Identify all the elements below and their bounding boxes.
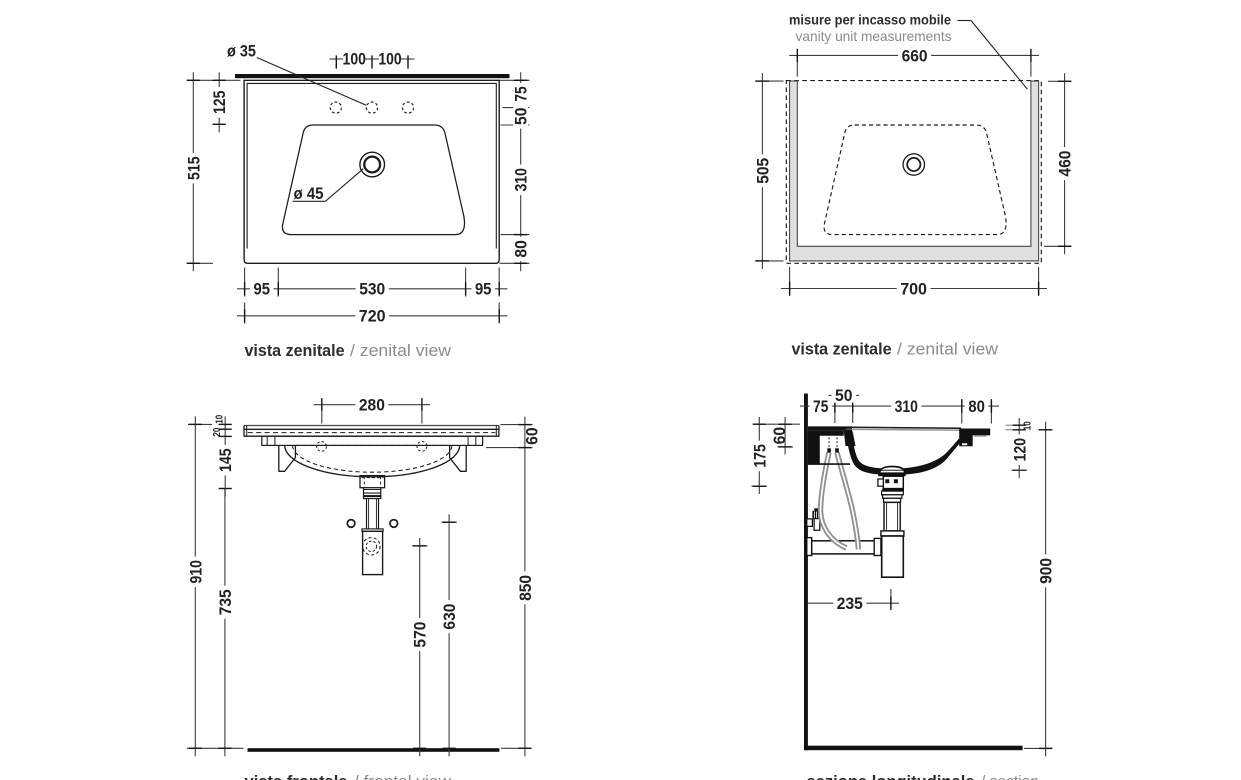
svg-text:630: 630 — [441, 604, 459, 630]
svg-text:/ section: / section — [981, 772, 1039, 780]
svg-text:ø 45: ø 45 — [294, 185, 324, 203]
svg-text:700: 700 — [900, 280, 927, 298]
svg-text:120: 120 — [1012, 438, 1030, 462]
svg-text:515: 515 — [185, 156, 203, 180]
svg-text:530: 530 — [359, 281, 385, 299]
svg-text:100: 100 — [378, 51, 401, 69]
svg-text:95: 95 — [475, 281, 492, 299]
svg-text:900: 900 — [1038, 558, 1056, 584]
svg-text:10: 10 — [214, 414, 225, 423]
svg-text:175: 175 — [751, 444, 769, 468]
svg-text:80: 80 — [513, 240, 531, 258]
svg-text:310: 310 — [895, 398, 918, 416]
svg-text:735: 735 — [217, 589, 235, 615]
svg-text:720: 720 — [359, 308, 386, 326]
svg-text:505: 505 — [754, 158, 772, 184]
svg-text:100: 100 — [343, 51, 366, 69]
svg-text:10: 10 — [1023, 421, 1034, 430]
svg-text:50: 50 — [513, 108, 531, 126]
svg-text:60: 60 — [523, 427, 541, 445]
svg-text:80: 80 — [968, 398, 985, 416]
svg-text:280: 280 — [359, 397, 385, 415]
svg-text:/ frontal view: / frontal view — [354, 772, 452, 780]
svg-text:460: 460 — [1057, 151, 1075, 177]
svg-text:310: 310 — [513, 168, 531, 192]
svg-text:ø 35: ø 35 — [227, 42, 256, 60]
svg-text:sezione longitudinale: sezione longitudinale — [807, 772, 975, 780]
svg-text:235: 235 — [837, 595, 863, 613]
svg-text:125: 125 — [211, 91, 229, 115]
svg-text:660: 660 — [902, 47, 928, 65]
svg-text:vista zenitale: vista zenitale — [792, 340, 892, 359]
svg-text:850: 850 — [517, 575, 535, 601]
svg-text:misure per incasso mobile: misure per incasso mobile — [789, 12, 951, 28]
svg-text:vista zenitale: vista zenitale — [245, 341, 345, 360]
svg-text:570: 570 — [412, 622, 430, 648]
svg-text:vanity unit measurements: vanity unit measurements — [796, 28, 952, 44]
svg-text:145: 145 — [217, 448, 235, 472]
svg-text:/ zenital view: / zenital view — [350, 341, 452, 360]
svg-text:75: 75 — [813, 398, 828, 416]
svg-text:vista frontale: vista frontale — [245, 772, 348, 780]
svg-text:60: 60 — [771, 427, 789, 445]
svg-text:910: 910 — [187, 560, 205, 584]
svg-text:95: 95 — [254, 281, 271, 299]
svg-text:50: 50 — [835, 387, 853, 405]
svg-text:/ zenital view: / zenital view — [897, 340, 999, 359]
svg-text:75: 75 — [513, 86, 531, 101]
